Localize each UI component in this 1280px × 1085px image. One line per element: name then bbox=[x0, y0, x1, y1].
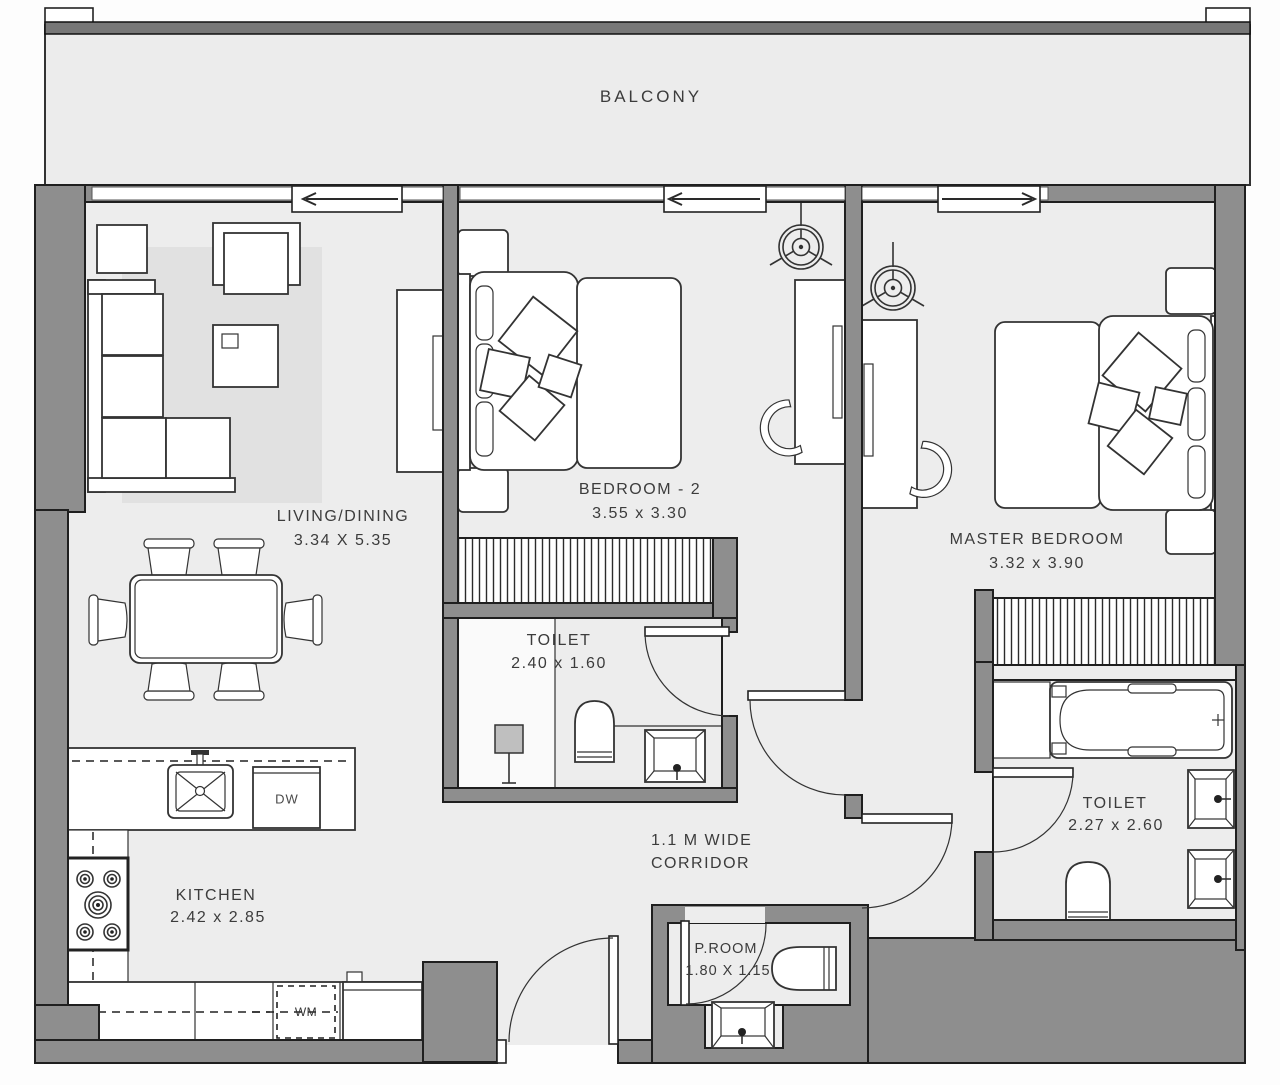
bedroom2-label: BEDROOM - 2 bbox=[579, 481, 701, 499]
nightstand bbox=[1166, 510, 1216, 554]
toilet-wc bbox=[772, 947, 836, 990]
living-dining-label: LIVING/DINING bbox=[277, 508, 409, 526]
corridor-label-line1: 1.1 M WIDE bbox=[651, 832, 752, 850]
toilet2-label: TOILET bbox=[527, 632, 592, 650]
washbasin bbox=[1188, 850, 1234, 908]
toilet-wc bbox=[575, 701, 614, 762]
wardrobe-bedroom2 bbox=[458, 538, 713, 603]
bedroom2-dimensions: 3.55 x 3.30 bbox=[592, 505, 688, 523]
washbasin bbox=[645, 730, 705, 782]
balcony-label: BALCONY bbox=[600, 87, 702, 107]
floor-plan: BALCONY LIVING/DINING 3.34 X 5.35 BEDROO… bbox=[0, 0, 1280, 1085]
master-toilet-dimensions: 2.27 x 2.60 bbox=[1068, 817, 1164, 835]
bed bbox=[458, 272, 681, 470]
kitchen-label: KITCHEN bbox=[176, 887, 257, 905]
master-bedroom-label: MASTER BEDROOM bbox=[950, 531, 1125, 549]
master-bedroom-dimensions: 3.32 x 3.90 bbox=[989, 555, 1085, 573]
powder-room-dimensions: 1.80 X 1.15 bbox=[685, 963, 770, 979]
nightstand bbox=[1166, 268, 1216, 314]
toilet2-dimensions: 2.40 x 1.60 bbox=[511, 655, 607, 673]
tv-unit bbox=[397, 290, 443, 472]
coffee-table bbox=[213, 325, 278, 387]
powder-room-label: P.ROOM bbox=[695, 941, 758, 957]
living-dining-dimensions: 3.34 X 5.35 bbox=[294, 532, 392, 550]
master-toilet-label: TOILET bbox=[1083, 795, 1148, 813]
corridor-label-line2: CORRIDOR bbox=[651, 855, 750, 873]
stove bbox=[66, 858, 128, 950]
desk bbox=[795, 280, 845, 464]
nightstand bbox=[458, 468, 508, 512]
nightstand bbox=[458, 230, 508, 276]
washbasin bbox=[712, 1002, 774, 1048]
bed bbox=[995, 316, 1223, 510]
washing-machine-label: WM bbox=[295, 1005, 317, 1019]
toilet-wc bbox=[1066, 862, 1110, 922]
dishwasher-label: DW bbox=[275, 792, 299, 807]
bathtub bbox=[1050, 682, 1232, 758]
accent-chair bbox=[213, 223, 300, 294]
wardrobe-master bbox=[993, 598, 1215, 665]
desk bbox=[862, 320, 917, 508]
washbasin bbox=[1188, 770, 1234, 828]
armchair bbox=[97, 225, 147, 273]
kitchen-dimensions: 2.42 x 2.85 bbox=[170, 909, 266, 927]
oven bbox=[343, 972, 422, 1040]
